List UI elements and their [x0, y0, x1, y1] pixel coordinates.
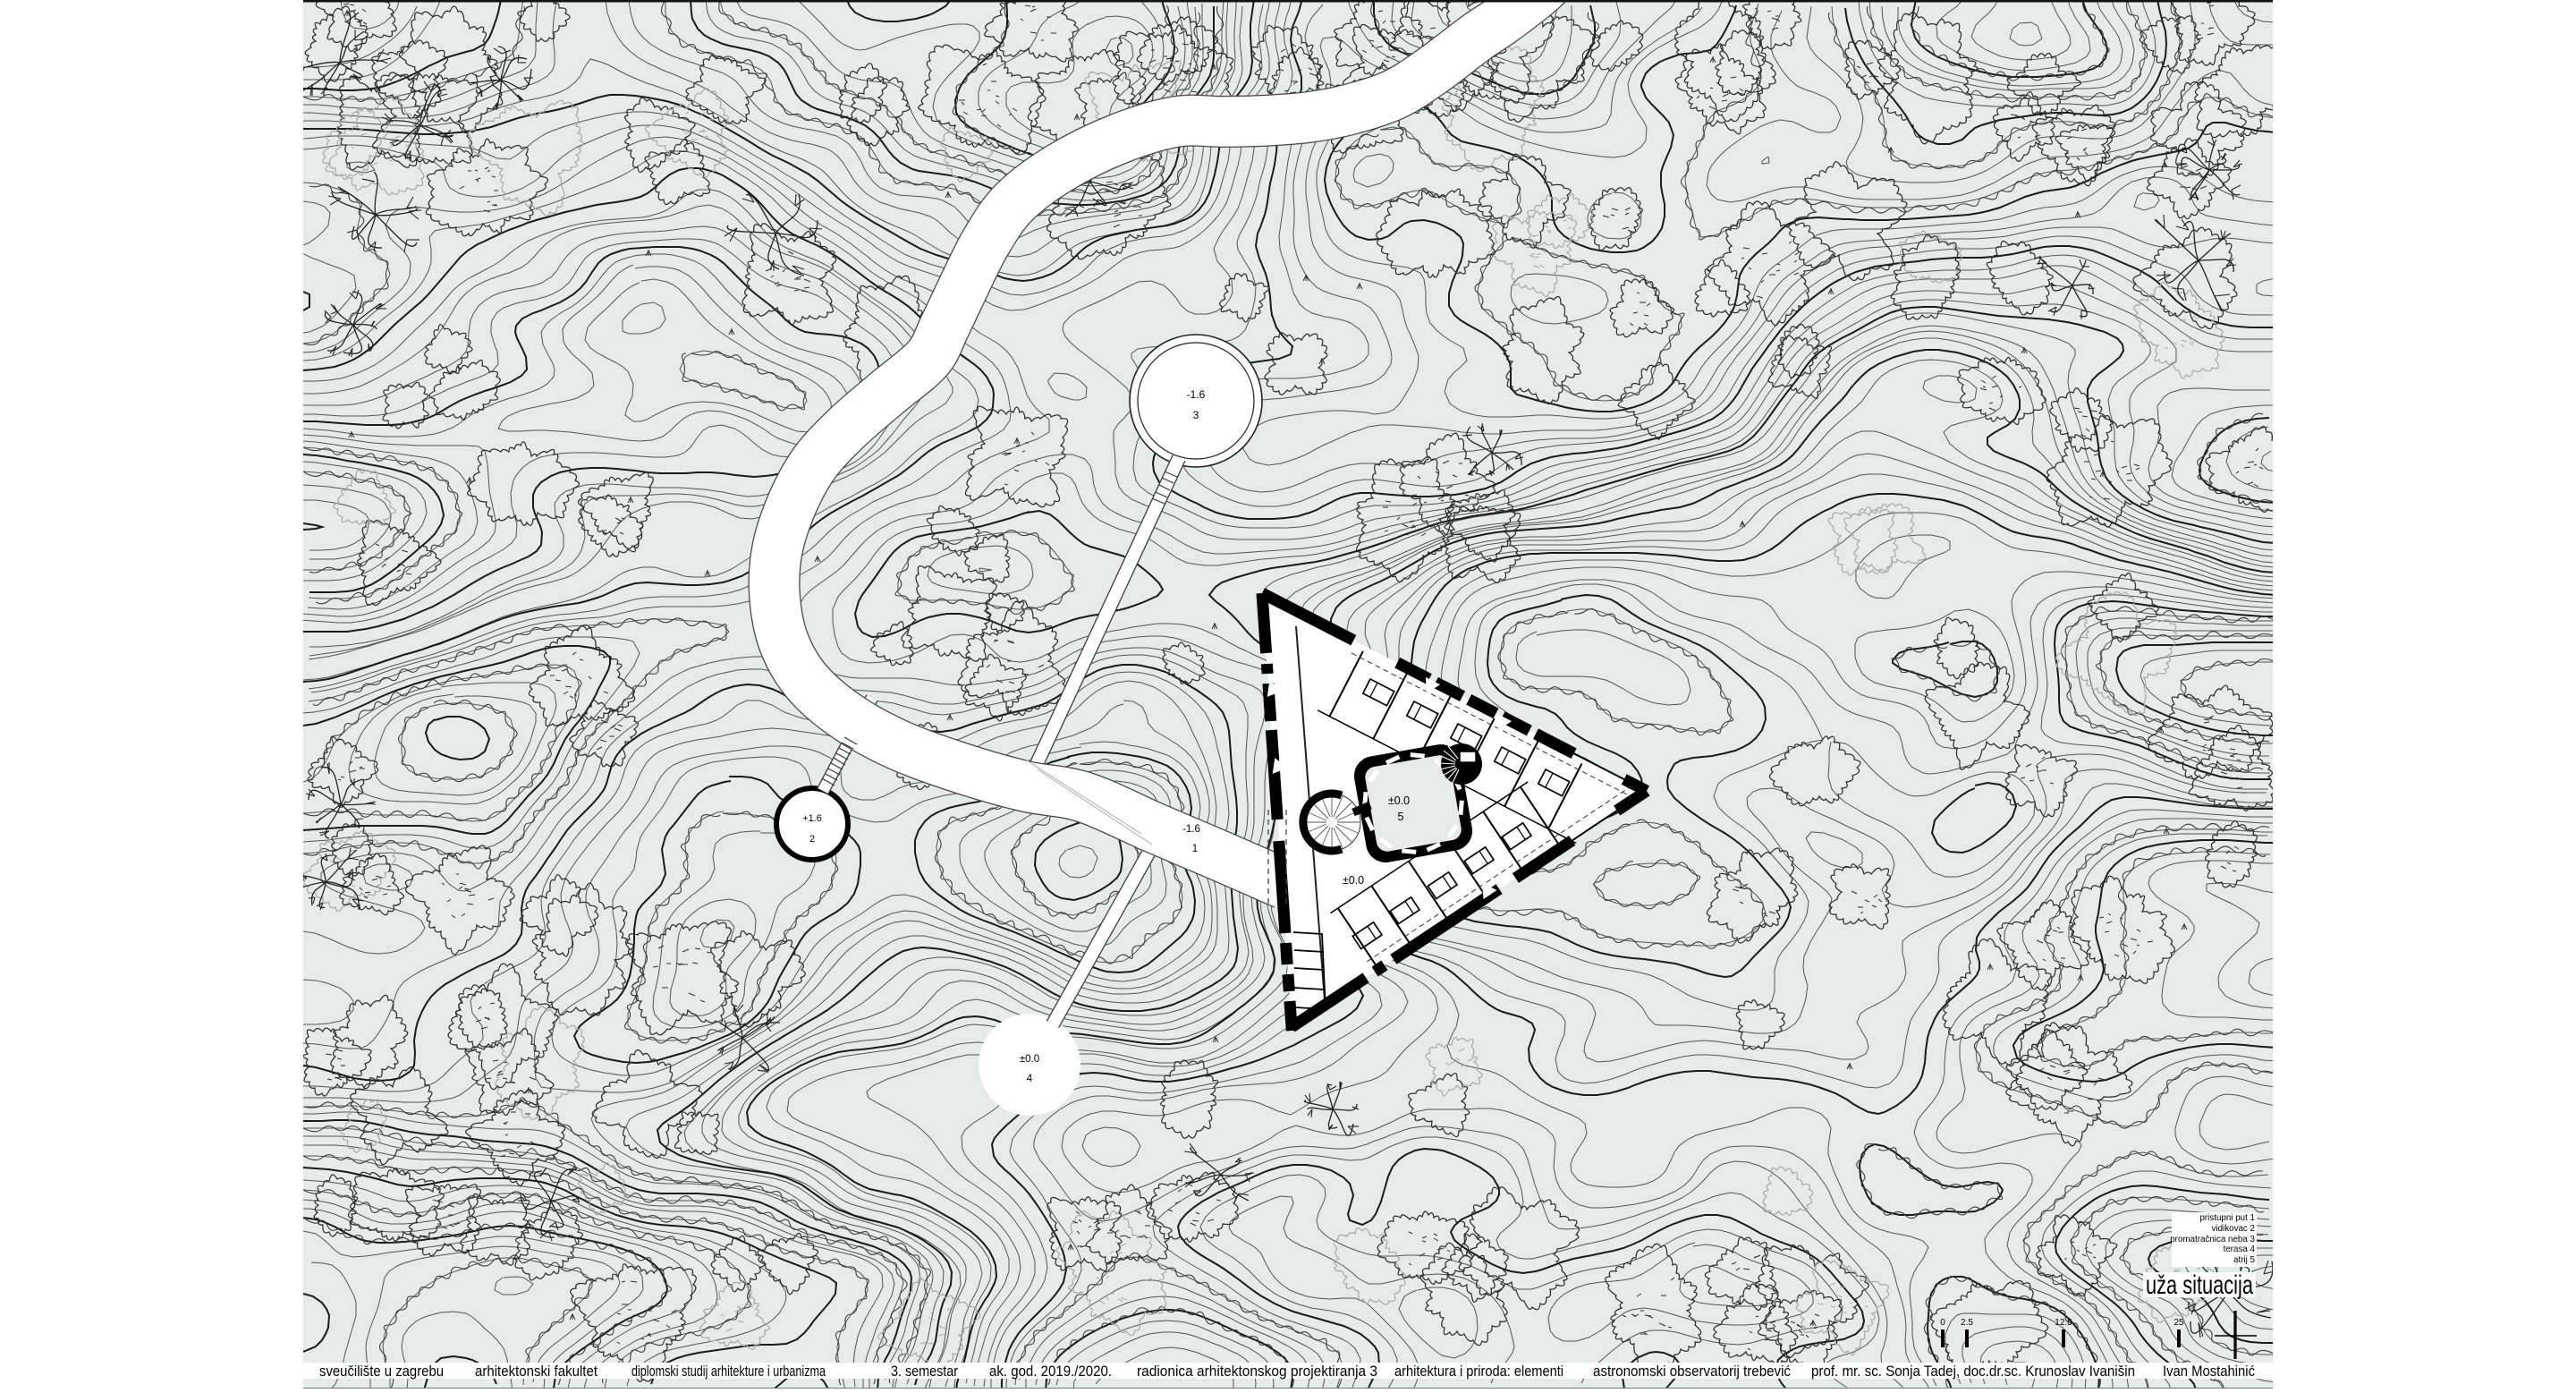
svg-text:vidikovac 2: vidikovac 2 [2212, 1224, 2255, 1234]
svg-text:astronomski observatorij trebe: astronomski observatorij trebević [1593, 1363, 1791, 1380]
svg-text:prof. mr. sc. Sonja Tadej, doc: prof. mr. sc. Sonja Tadej, doc.dr.sc. Kr… [1811, 1363, 2135, 1380]
svg-text:radionica arhitektonskog proje: radionica arhitektonskog projektiranja 3 [1137, 1363, 1377, 1380]
svg-text:atrij 5: atrij 5 [2233, 1255, 2256, 1265]
svg-text:5: 5 [1398, 811, 1404, 823]
svg-text:2: 2 [809, 834, 815, 845]
svg-text:ak. god. 2019./2020.: ak. god. 2019./2020. [989, 1363, 1112, 1380]
svg-text:±0.0: ±0.0 [1343, 874, 1364, 887]
svg-text:uža situacija: uža situacija [2146, 1270, 2253, 1300]
svg-text:4: 4 [1027, 1074, 1033, 1084]
svg-text:±0.0: ±0.0 [1020, 1054, 1039, 1065]
svg-text:-1.6: -1.6 [1187, 388, 1206, 401]
svg-text:1: 1 [1192, 844, 1198, 854]
svg-text:pristupni put 1: pristupni put 1 [2199, 1213, 2255, 1223]
svg-text:terasa 4: terasa 4 [2224, 1244, 2256, 1254]
svg-text:25: 25 [2173, 1318, 2184, 1328]
svg-text:±0.0: ±0.0 [1388, 794, 1410, 807]
svg-text:2.5: 2.5 [1961, 1318, 1973, 1328]
svg-text:arhitektonski fakultet: arhitektonski fakultet [475, 1363, 597, 1380]
svg-text:3. semestar: 3. semestar [891, 1363, 959, 1380]
svg-text:arhitektura i priroda: element: arhitektura i priroda: elementi [1394, 1363, 1563, 1380]
svg-text:0: 0 [1940, 1318, 1945, 1328]
svg-text:+1.6: +1.6 [802, 813, 822, 824]
svg-text:diplomski studij arhitekture i: diplomski studij arhitekture i urbanizma [631, 1363, 826, 1380]
svg-text:promatračnica neba 3: promatračnica neba 3 [2170, 1235, 2255, 1244]
svg-text:3: 3 [1193, 409, 1199, 421]
svg-text:Ivan Mostahinić: Ivan Mostahinić [2163, 1363, 2255, 1380]
svg-text:12.5: 12.5 [2055, 1318, 2072, 1328]
svg-text:-1.6: -1.6 [1182, 824, 1200, 835]
svg-text:sveučilište u zagrebu: sveučilište u zagrebu [319, 1363, 444, 1380]
